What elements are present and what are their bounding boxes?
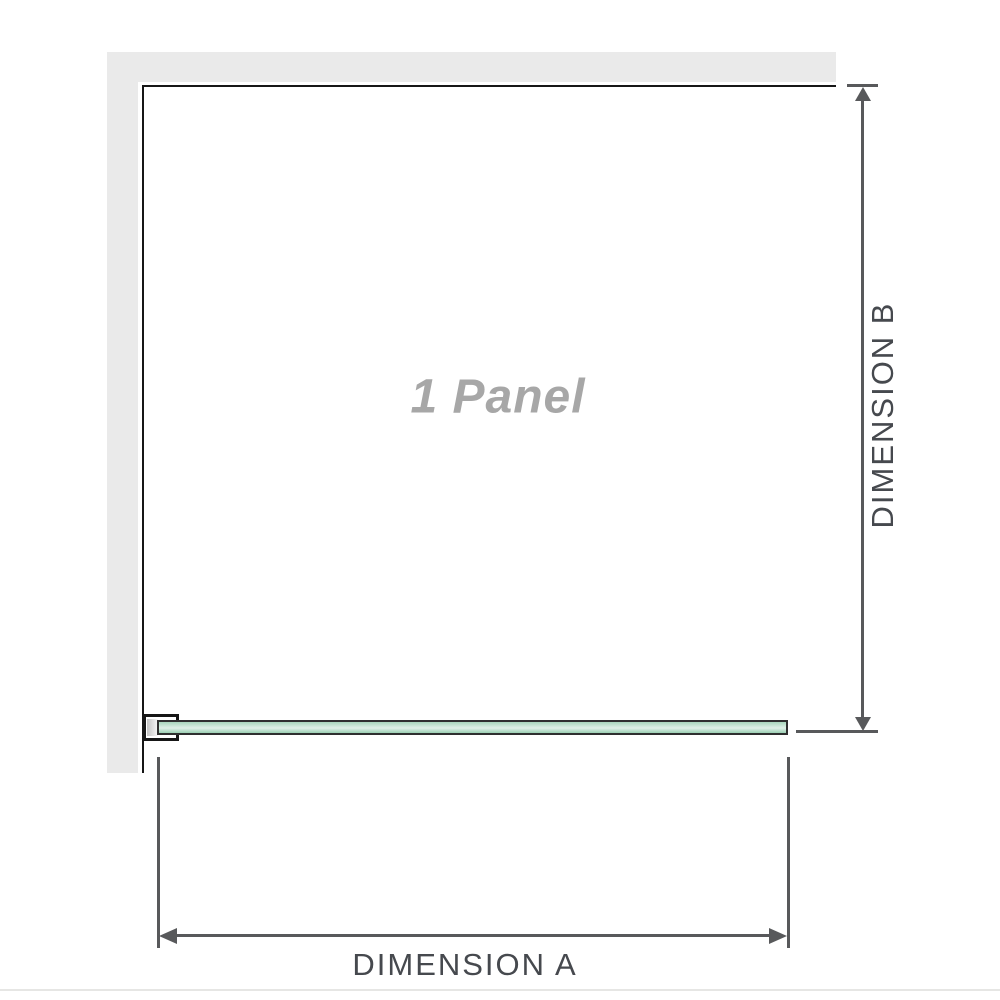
dimension-a-extension-right xyxy=(787,757,790,948)
shower-panel-diagram: 1 Panel DIMENSION B DIMENSION A xyxy=(0,0,1000,1000)
dimension-b-label: DIMENSION B xyxy=(865,302,901,529)
glass-panel xyxy=(157,720,788,735)
dimension-a-arrowhead-left xyxy=(159,928,177,944)
bottom-divider xyxy=(0,989,1000,991)
dimension-b-arrowhead-top xyxy=(855,87,871,101)
dimension-b-arrowhead-bottom xyxy=(855,717,871,731)
wall-edge-left xyxy=(142,85,144,773)
dimension-a-arrowhead-right xyxy=(769,928,787,944)
dimension-a-label: DIMENSION A xyxy=(352,947,577,983)
wall-left xyxy=(107,52,138,773)
dimension-a-extension-left xyxy=(157,757,160,948)
wall-edge-top xyxy=(142,85,836,87)
dimension-b-line xyxy=(861,99,864,719)
wall-top xyxy=(107,52,836,82)
panel-count-label: 1 Panel xyxy=(410,370,585,425)
dimension-a-line xyxy=(176,934,770,937)
